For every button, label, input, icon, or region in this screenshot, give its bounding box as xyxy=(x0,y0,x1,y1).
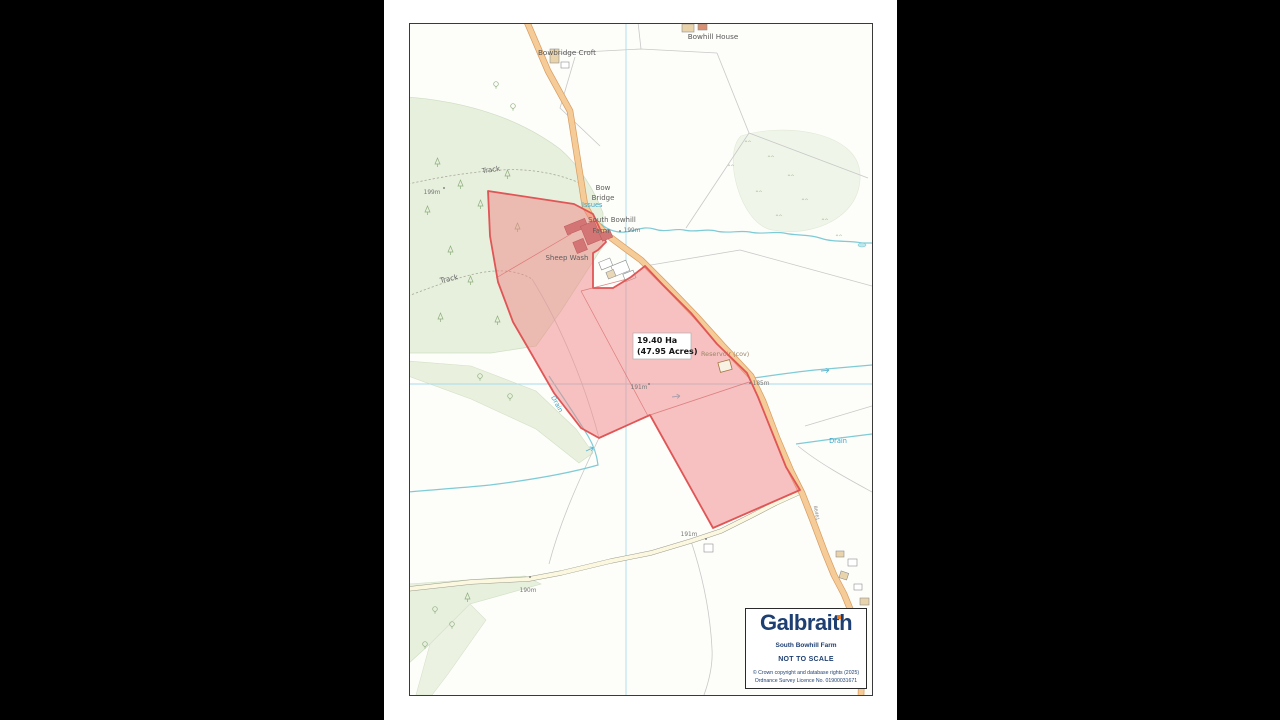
logo-orange-dot-icon xyxy=(837,615,841,619)
legend-scale-note: NOT TO SCALE xyxy=(778,656,834,663)
label-bowhill-house: Bowhill House xyxy=(688,32,739,41)
label-bowbridge-croft: Bowbridge Croft xyxy=(538,48,596,57)
area-acres: (47.95 Acres) xyxy=(637,347,697,356)
galbraith-logo: Galbraith xyxy=(760,611,852,635)
plan-page: Issues xyxy=(384,0,897,720)
spot-height-field: 191m xyxy=(631,385,648,391)
spot-height-road-east: 185m xyxy=(753,381,770,387)
label-bridge: Bridge xyxy=(592,194,615,202)
map-frame: Issues xyxy=(409,23,873,696)
spot-height-wood: 199m xyxy=(424,190,441,196)
legend-box: Galbraith South Bowhill Farm NOT TO SCAL… xyxy=(745,608,867,689)
legend-copyright: © Crown copyright and database rights (2… xyxy=(753,670,859,685)
label-issues: Issues xyxy=(582,201,603,209)
legend-property-name: South Bowhill Farm xyxy=(775,642,836,649)
spot-height-road-south: 191m xyxy=(681,532,698,538)
area-hectares: 19.40 Ha xyxy=(637,336,677,345)
label-drain-east: Drain xyxy=(829,437,847,445)
spot-height-farm: 199m xyxy=(624,228,641,234)
label-reservoir: Reservoir (cov) xyxy=(701,350,749,358)
legend-copyright-line1: © Crown copyright and database rights (2… xyxy=(753,670,859,678)
label-farm-line2: Farm xyxy=(592,227,609,235)
label-sheep-wash: Sheep Wash xyxy=(545,254,588,262)
screenshot-root: { "map": { "place_labels": { "bowbridge_… xyxy=(0,0,1280,720)
pond xyxy=(858,243,866,247)
label-bow: Bow xyxy=(596,184,611,192)
label-farm-line1: South Bowhill xyxy=(588,216,636,224)
area-label: 19.40 Ha (47.95 Acres) xyxy=(633,333,697,359)
galbraith-logo-text: Galbraith xyxy=(760,610,852,635)
legend-copyright-line2: Ordnance Survey Licence No. 01900031671 xyxy=(753,678,859,686)
map-canvas: Issues xyxy=(410,24,872,695)
spot-height-road-west: 190m xyxy=(520,588,537,594)
